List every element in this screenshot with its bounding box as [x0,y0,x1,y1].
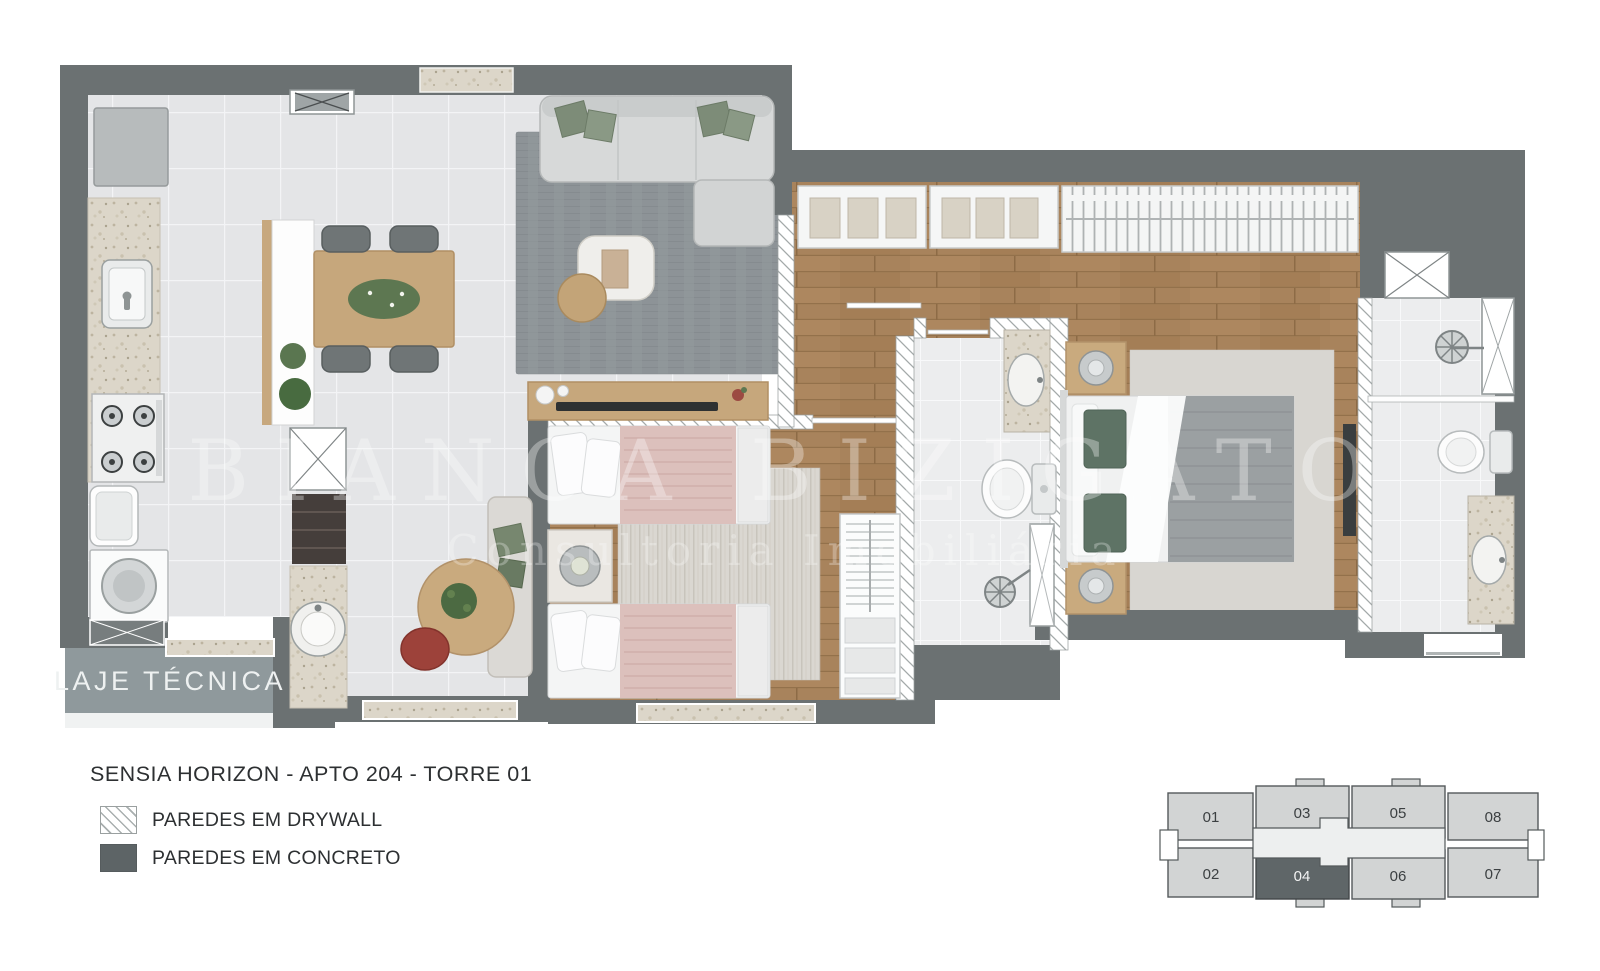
closet-shelves-a [798,186,926,248]
laje-tecnica-label: LAJE TÉCNICA [54,666,286,696]
window-top-granite [420,68,513,92]
closet-shelves-b [930,186,1058,248]
concrete-swatch-icon [100,844,137,872]
centerpiece-flower [400,292,404,296]
sofa-pillow [584,110,616,142]
window-office [363,701,517,719]
laje-tecnica-sill-strip [65,713,275,728]
shower-glass [1368,396,1514,402]
bath-middle-sink [1004,330,1050,432]
shaft-right-block [1385,252,1449,298]
keyplan-label-04: 04 [1294,868,1311,885]
plan-title: SENSIA HORIZON - APTO 204 - TORRE 01 [90,762,532,787]
legend-row-concrete: PAREDES EM CONCRETO [100,843,532,873]
keyplan-label-07: 07 [1485,866,1502,883]
red-chair [401,628,449,670]
keyplan-notch-left [1160,830,1178,860]
table-centerpiece-plant [348,279,420,319]
keyplan: 01 02 03 04 05 06 07 08 [1160,779,1544,907]
faucet [1499,557,1505,563]
centerpiece-flower [368,291,372,295]
keyplan-label-03: 03 [1294,805,1311,822]
dining-chair-4 [390,346,438,372]
shaft-kitchen-top [290,90,354,114]
decor-plate-2 [558,386,569,397]
door-leaf-bath-middle [928,330,988,334]
tv-console [528,382,768,420]
refrigerator [94,108,168,186]
dining-chair-1 [322,226,370,252]
laundry-tank [90,486,138,546]
tv-screen [556,402,718,411]
keyplan-label-01: 01 [1203,809,1220,826]
washing-machine [90,550,168,622]
watermark-line1: BIANCA BIZIGATO [187,422,1392,520]
wall-left [60,65,88,625]
shaft-bath-right [1482,298,1514,394]
plant-sideboard-2 [279,378,311,410]
table-plant [441,583,477,619]
keyplan-label-05: 05 [1390,805,1407,822]
watermark-line2: Consultoria Imobiliária [446,526,1123,575]
wall-bath-middle-bottom [895,645,1060,700]
sofa-pillow [723,109,755,141]
legend-row-drywall: PAREDES EM DRYWALL [100,805,532,835]
keyplan-label-02: 02 [1203,866,1220,883]
side-table [558,274,606,322]
door-bath-right [1424,634,1502,656]
bath-right-sink [1468,496,1514,624]
faucet [1037,377,1043,383]
decor-flowers-leaf [741,387,747,393]
shaft-laundry [90,620,164,645]
keyplan-notch-right [1528,830,1544,860]
legend-label-drywall: PAREDES EM DRYWALL [152,809,382,832]
lavabo-counter [290,566,347,708]
basin-faucet [315,605,322,612]
legend-label-concrete: PAREDES EM CONCRETO [152,847,401,870]
drywall-bath-middle-top-a [914,318,926,338]
drywall-swatch-icon [100,806,137,834]
nightstand-master-1 [1066,342,1126,394]
bath-right-toilet [1438,431,1512,473]
centerpiece-flower [390,303,394,307]
floorplan-canvas: LAJE TÉCNICA BIANCA BIZIGATO Consultoria… [0,0,1600,971]
dining-chair-3 [322,346,370,372]
table-plant-leaf [447,590,455,598]
drywall-corridor-left [778,215,794,427]
book [602,250,628,288]
keyplan-label-08: 08 [1485,809,1502,826]
door-leaf-master [847,303,921,308]
wall-wing-top [790,150,1525,182]
closet-hanging [1062,186,1358,252]
stove [92,394,164,482]
keyplan-label-06: 06 [1390,868,1407,885]
laje-service-sill [166,639,274,656]
kitchen-sink [102,260,152,328]
table-plant-leaf [463,604,471,612]
single-bed-2 [548,604,770,698]
sideboard-wood-edge [262,220,272,425]
window-bedroom2 [637,704,815,722]
plant-sideboard-1 [280,343,306,369]
decor-plate-1 [536,386,554,404]
dining-chair-2 [390,226,438,252]
legend: PAREDES EM DRYWALL PAREDES EM CONCRETO [90,805,532,873]
caption-block: SENSIA HORIZON - APTO 204 - TORRE 01 PAR… [90,762,532,881]
